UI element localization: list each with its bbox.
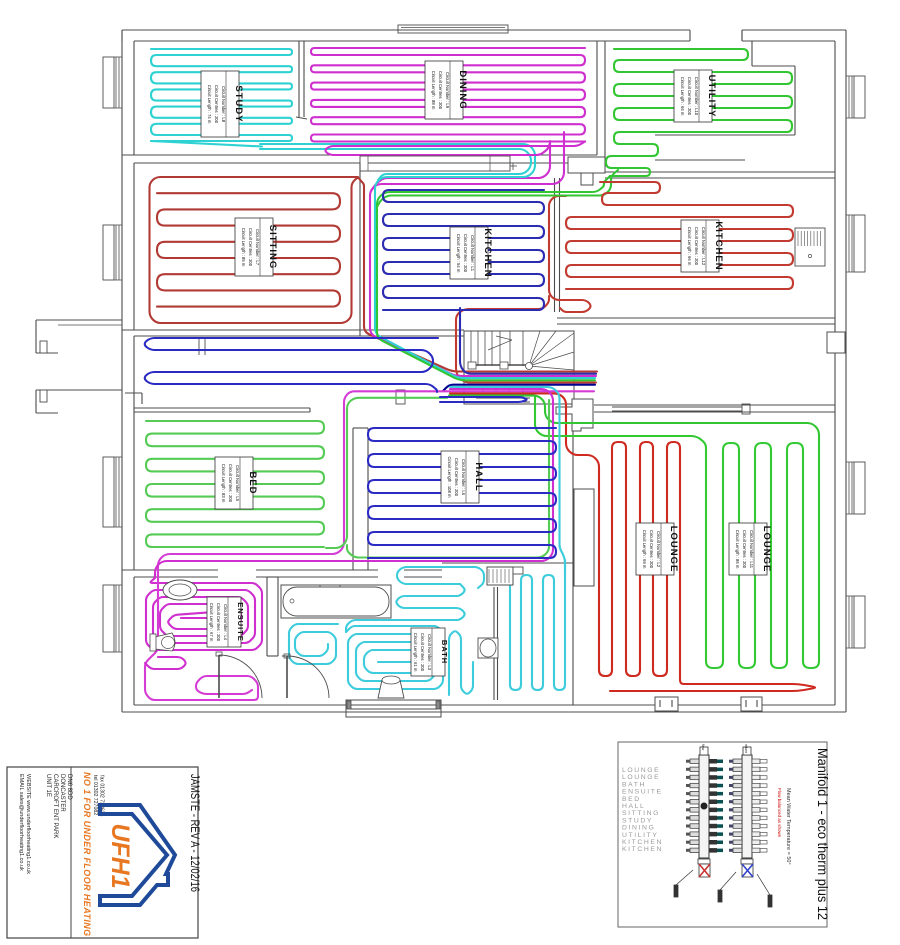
svg-text:DONCASTER: DONCASTER [59,774,65,812]
svg-text:UFH1: UFH1 [106,823,134,888]
svg-text:Circuit Number : L10: Circuit Number : L10 [694,77,699,116]
svg-text:Circuit Number : L4: Circuit Number : L4 [223,604,228,641]
svg-text:Circuit Number : L12: Circuit Number : L12 [701,227,706,266]
svg-text:Circuit Centres : 200: Circuit Centres : 200 [694,227,699,266]
svg-text:KITCHEN: KITCHEN [713,221,724,270]
svg-text:HALL: HALL [473,462,484,491]
svg-text:Flow balanced as shown: Flow balanced as shown [777,788,782,838]
svg-text:BATH: BATH [440,640,449,664]
svg-text:WEBSITE www.underfloorheatin: WEBSITE www.underfloorheating1.co.uk [25,774,31,874]
svg-text:LOUNGE: LOUNGE [668,526,679,573]
svg-text:Circuit Centres : 200: Circuit Centres : 200 [687,77,692,116]
svg-text:Circuit Number : L11: Circuit Number : L11 [749,530,754,569]
svg-text:Circuit Length : 69 m: Circuit Length : 69 m [642,530,647,569]
svg-text:Circuit Length : 54 m: Circuit Length : 54 m [456,234,461,273]
svg-text:Circuit Centres : 200: Circuit Centres : 200 [216,603,221,642]
svg-text:Circuit Number : L8: Circuit Number : L8 [221,86,226,123]
svg-text:UTILITY: UTILITY [622,832,659,839]
svg-text:Circuit Centres : 200: Circuit Centres : 200 [420,633,425,672]
svg-text:Circuit Length : 61 m: Circuit Length : 61 m [413,633,418,672]
svg-text:Circuit Centres : 200: Circuit Centres : 200 [454,458,459,497]
svg-text:DINING: DINING [457,70,468,109]
svg-text:Circuit Length : 86 m: Circuit Length : 86 m [735,530,740,569]
svg-text:Circuit Length : 66 m: Circuit Length : 66 m [687,227,692,266]
svg-text:Circuit Length : 66 m: Circuit Length : 66 m [680,77,685,116]
svg-text:EMAIL sales@underfloorheatin: EMAIL sales@underfloorheating1.co.uk [18,774,24,871]
svg-text:Circuit Centres : 200: Circuit Centres : 200 [214,85,219,124]
svg-text:Circuit Length : 88 m: Circuit Length : 88 m [431,71,436,110]
svg-text:CARCROFT ENT PARK: CARCROFT ENT PARK [52,774,58,838]
svg-text:KITCHEN: KITCHEN [622,846,663,853]
svg-text:Mean Water Temperature = 50°: Mean Water Temperature = 50° [785,788,791,865]
svg-text:BED: BED [247,471,258,494]
svg-text:ENSUITE: ENSUITE [236,602,245,642]
svg-text:Circuit Centres : 200: Circuit Centres : 200 [248,228,253,267]
svg-text:Circuit Number : L6: Circuit Number : L6 [461,459,466,496]
svg-text:LOUNGE: LOUNGE [622,774,660,781]
svg-text:STUDY: STUDY [622,817,653,824]
svg-text:ENSUITE: ENSUITE [622,789,663,796]
svg-text:Circuit Centres : 200: Circuit Centres : 200 [649,530,654,569]
svg-text:DINING: DINING [622,825,655,832]
svg-text:DN6 8DD: DN6 8DD [66,774,72,800]
svg-text:SITTING: SITTING [622,810,660,817]
svg-text:Circuit Number : L3: Circuit Number : L3 [427,634,432,671]
svg-text:Circuit Number : L2: Circuit Number : L2 [656,531,661,568]
svg-text:UNIT 1E: UNIT 1E [45,774,51,797]
svg-text:Manifold 1 - eco therm plus 12: Manifold 1 - eco therm plus 12 [815,748,831,920]
svg-text:BED: BED [622,796,641,803]
svg-text:Circuit Number : L7: Circuit Number : L7 [255,229,260,266]
svg-text:LOUNGE: LOUNGE [622,767,660,774]
svg-text:Circuit Number : L1: Circuit Number : L1 [470,235,475,272]
svg-text:Circuit Length : 67 m: Circuit Length : 67 m [209,603,214,642]
svg-text:LOUNGE: LOUNGE [761,526,772,573]
svg-text:NO 1 FOR UNDER FLOOR HEATING: NO 1 FOR UNDER FLOOR HEATING [82,772,92,937]
svg-text:JAMSTE - REV A - 12/02/16: JAMSTE - REV A - 12/02/16 [188,774,202,892]
svg-text:BATH: BATH [622,781,646,788]
svg-text:Circuit Number : L9: Circuit Number : L9 [445,72,450,109]
svg-text:UTILITY: UTILITY [706,75,717,118]
svg-text:return: return [744,744,748,753]
svg-text:Circuit Centres : 200: Circuit Centres : 200 [742,530,747,569]
svg-text:flow: flow [701,744,705,751]
svg-text:Circuit Length : 85 m: Circuit Length : 85 m [241,228,246,267]
svg-text:Circuit Number : L5: Circuit Number : L5 [235,465,240,502]
svg-text:KITCHEN: KITCHEN [482,228,493,277]
svg-text:Circuit Centres : 200: Circuit Centres : 200 [463,234,468,273]
svg-text:Circuit Centres : 200: Circuit Centres : 200 [438,71,443,110]
svg-text:Circuit Length : 83 m: Circuit Length : 83 m [221,464,226,503]
svg-text:HALL: HALL [622,803,645,810]
svg-text:KITCHEN: KITCHEN [622,839,663,846]
svg-text:Circuit Length : 74 m: Circuit Length : 74 m [207,85,212,124]
svg-text:STUDY: STUDY [233,85,244,122]
svg-text:Circuit Centres : 200: Circuit Centres : 200 [228,464,233,503]
svg-text:SITTING: SITTING [267,225,278,269]
svg-text:Circuit Length : 108 m: Circuit Length : 108 m [447,457,452,498]
